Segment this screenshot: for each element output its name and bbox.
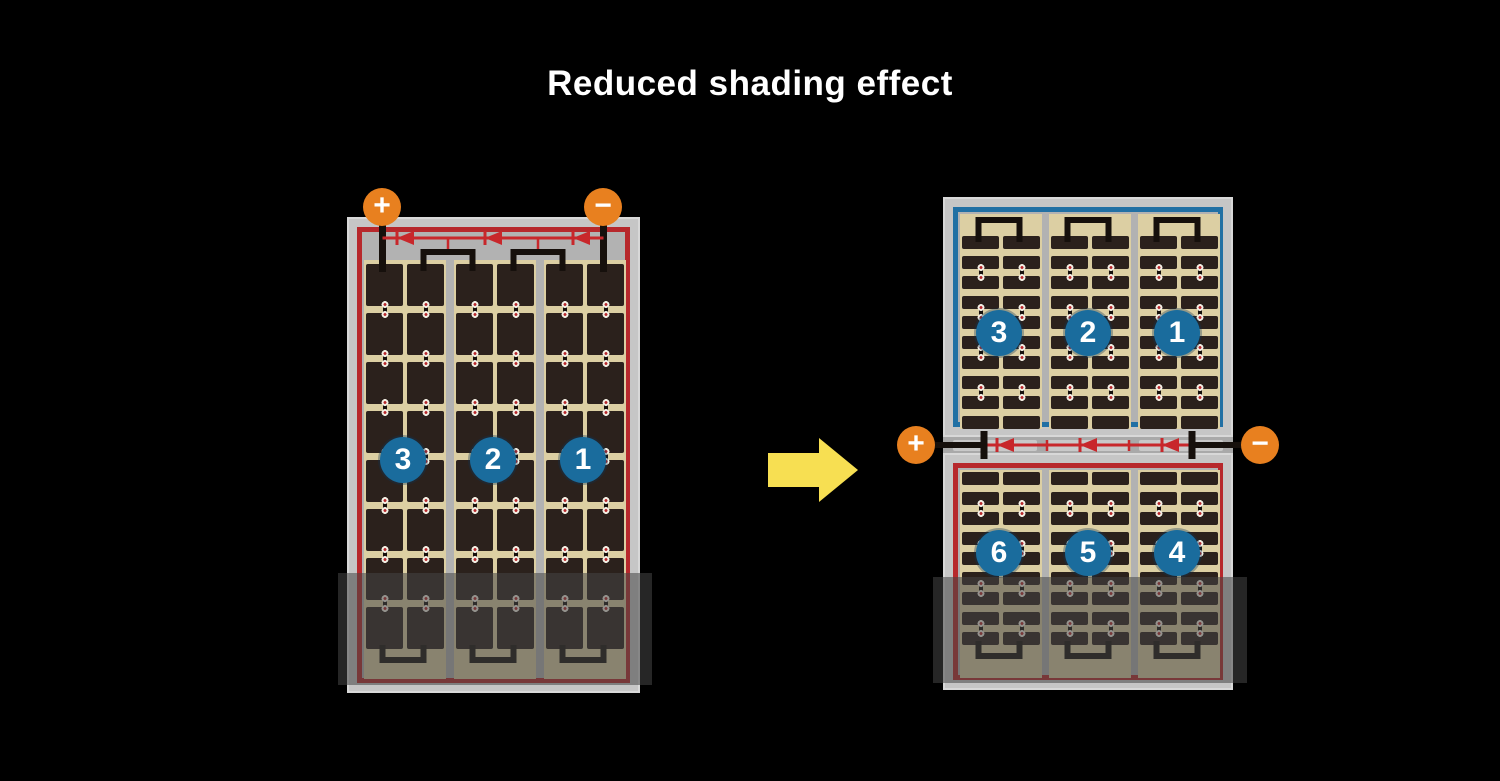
cell-connector <box>1018 344 1026 361</box>
solar-half-cell <box>962 416 999 429</box>
solar-cell <box>456 313 493 355</box>
cell-connector <box>602 350 610 367</box>
solar-cell <box>497 362 534 404</box>
cell-connector <box>381 399 389 416</box>
solar-cell <box>587 264 624 306</box>
cell-connector <box>1196 384 1204 401</box>
solar-half-cell <box>1092 416 1129 429</box>
cell-connector <box>471 301 479 318</box>
plus-terminal-right: + <box>897 426 935 464</box>
string-badge-label: 3 <box>991 316 1008 350</box>
cell-connector <box>602 301 610 318</box>
string-badge-label: 5 <box>1080 536 1097 570</box>
cell-connector <box>1107 344 1115 361</box>
cell-connector <box>471 399 479 416</box>
string-badge-top-3: 3 <box>976 310 1022 356</box>
string-badge-label: 3 <box>395 443 412 477</box>
cell-connector <box>422 399 430 416</box>
solar-cell <box>456 362 493 404</box>
solar-cell <box>587 313 624 355</box>
page-title: Reduced shading effect <box>0 64 1500 104</box>
solar-cell <box>407 362 444 404</box>
minus-icon: − <box>1251 429 1269 459</box>
cell-connector <box>1066 500 1074 517</box>
solar-half-cell <box>1181 236 1218 249</box>
solar-cell <box>497 313 534 355</box>
cell-connector <box>1066 264 1074 281</box>
cell-connector <box>471 350 479 367</box>
string-badge-label: 2 <box>1080 316 1097 350</box>
string-badge-bottom-4: 4 <box>1154 530 1200 576</box>
cell-connector <box>1155 264 1163 281</box>
solar-cell <box>546 313 583 355</box>
cell-connector <box>561 350 569 367</box>
plus-terminal-left: + <box>363 188 401 226</box>
solar-half-cell <box>962 472 999 485</box>
solar-cell <box>456 509 493 551</box>
solar-half-cell <box>1140 472 1177 485</box>
cell-connector <box>1196 264 1204 281</box>
solar-cell <box>587 362 624 404</box>
string-badge-label: 1 <box>575 443 592 477</box>
string-badge-label: 1 <box>1169 316 1186 350</box>
solar-cell <box>366 362 403 404</box>
cell-connector <box>1155 384 1163 401</box>
cell-connector <box>1196 500 1204 517</box>
cell-connector <box>561 497 569 514</box>
cell-connector <box>471 546 479 563</box>
plus-icon: + <box>907 429 925 459</box>
solar-cell <box>546 362 583 404</box>
junction-segment <box>953 440 1037 451</box>
wiring-diagram-svg <box>0 0 1500 781</box>
solar-half-cell <box>1051 236 1088 249</box>
solar-cell <box>456 264 493 306</box>
cell-connector <box>512 301 520 318</box>
cell-connector <box>977 264 985 281</box>
transform-arrow-icon <box>760 430 870 510</box>
minus-terminal-left: − <box>584 188 622 226</box>
cell-connector <box>561 399 569 416</box>
plus-icon: + <box>373 191 391 221</box>
cell-connector <box>422 350 430 367</box>
junction-segment <box>1046 440 1130 451</box>
solar-half-cell <box>1092 472 1129 485</box>
solar-half-cell <box>1140 236 1177 249</box>
junction-segment <box>1139 440 1223 451</box>
cell-connector <box>512 497 520 514</box>
cell-connector <box>1066 384 1074 401</box>
solar-cell <box>407 264 444 306</box>
cell-connector <box>977 500 985 517</box>
cell-connector <box>381 546 389 563</box>
minus-terminal-right: − <box>1241 426 1279 464</box>
cell-connector <box>381 497 389 514</box>
cell-connector <box>561 301 569 318</box>
solar-cell <box>546 264 583 306</box>
solar-cell <box>366 313 403 355</box>
solar-half-cell <box>1140 416 1177 429</box>
cell-connector <box>381 301 389 318</box>
solar-cell <box>497 509 534 551</box>
string-badge-bottom-6: 6 <box>976 530 1022 576</box>
cell-connector <box>977 384 985 401</box>
solar-cell <box>407 509 444 551</box>
string-badge-label: 4 <box>1169 536 1186 570</box>
solar-half-cell <box>1003 236 1040 249</box>
string-badge-bottom-5: 5 <box>1065 530 1111 576</box>
string-badge-label: 2 <box>485 443 502 477</box>
cell-connector <box>1155 500 1163 517</box>
cell-connector <box>512 546 520 563</box>
cell-connector <box>381 350 389 367</box>
cell-connector <box>422 301 430 318</box>
solar-half-cell <box>1181 416 1218 429</box>
solar-half-cell <box>962 236 999 249</box>
solar-cell <box>546 509 583 551</box>
string-badge-left-3: 3 <box>380 437 426 483</box>
string-badge-top-1: 1 <box>1154 310 1200 356</box>
cell-connector <box>422 497 430 514</box>
cell-connector <box>422 546 430 563</box>
cell-connector <box>1018 384 1026 401</box>
cell-connector <box>1107 500 1115 517</box>
minus-icon: − <box>594 191 612 221</box>
string-badge-top-2: 2 <box>1065 310 1111 356</box>
solar-half-cell <box>1181 472 1218 485</box>
string-badge-left-1: 1 <box>560 437 606 483</box>
solar-half-cell <box>1003 416 1040 429</box>
cell-connector <box>602 546 610 563</box>
cell-connector <box>1196 304 1204 321</box>
solar-cell <box>366 264 403 306</box>
string-badge-left-2: 2 <box>470 437 516 483</box>
shading-overlay-right <box>933 577 1247 683</box>
solar-cell <box>497 264 534 306</box>
cell-connector <box>1107 264 1115 281</box>
cell-connector <box>1018 500 1026 517</box>
solar-half-cell <box>1051 472 1088 485</box>
string-badge-label: 6 <box>991 536 1008 570</box>
solar-half-cell <box>1051 416 1088 429</box>
solar-half-cell <box>1003 472 1040 485</box>
cell-connector <box>512 350 520 367</box>
cell-connector <box>1196 344 1204 361</box>
solar-cell <box>587 509 624 551</box>
cell-connector <box>512 399 520 416</box>
shading-overlay-left <box>338 573 652 685</box>
cell-connector <box>602 399 610 416</box>
solar-cell <box>366 509 403 551</box>
junction-box-strip <box>943 437 1233 453</box>
cell-connector <box>471 497 479 514</box>
cell-connector <box>1107 384 1115 401</box>
cell-connector <box>1107 304 1115 321</box>
solar-cell <box>407 313 444 355</box>
cell-connector <box>1018 264 1026 281</box>
solar-half-cell <box>1092 236 1129 249</box>
cell-connector <box>602 497 610 514</box>
cell-connector <box>561 546 569 563</box>
cell-connector <box>1018 304 1026 321</box>
